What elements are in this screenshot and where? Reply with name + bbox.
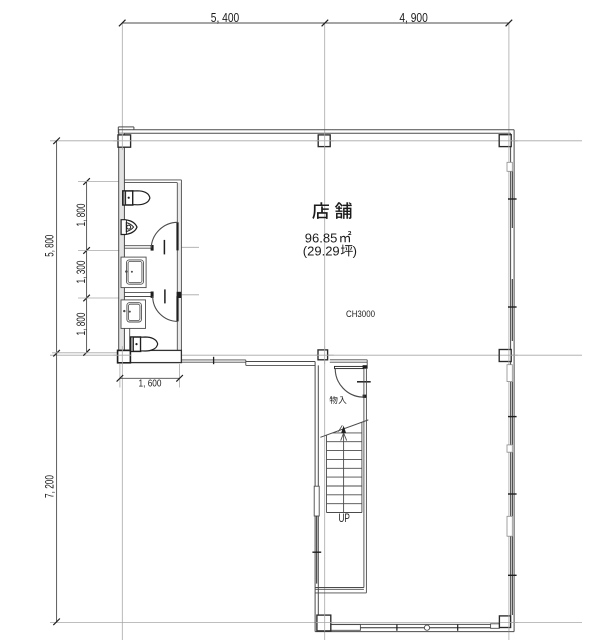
svg-text:1, 800: 1, 800	[75, 203, 88, 226]
svg-text:1, 300: 1, 300	[75, 260, 88, 283]
svg-text:5, 800: 5, 800	[43, 234, 56, 256]
svg-text:UP: UP	[338, 513, 350, 525]
svg-text:): )	[353, 243, 357, 258]
svg-text:1, 800: 1, 800	[75, 312, 88, 335]
svg-text:7, 200: 7, 200	[43, 475, 56, 498]
svg-text:5, 400: 5, 400	[211, 10, 240, 25]
svg-text:4, 900: 4, 900	[399, 10, 428, 25]
svg-text:CH3000: CH3000	[346, 309, 375, 320]
svg-text:(29.29: (29.29	[303, 243, 340, 258]
svg-text:1, 600: 1, 600	[139, 379, 162, 390]
